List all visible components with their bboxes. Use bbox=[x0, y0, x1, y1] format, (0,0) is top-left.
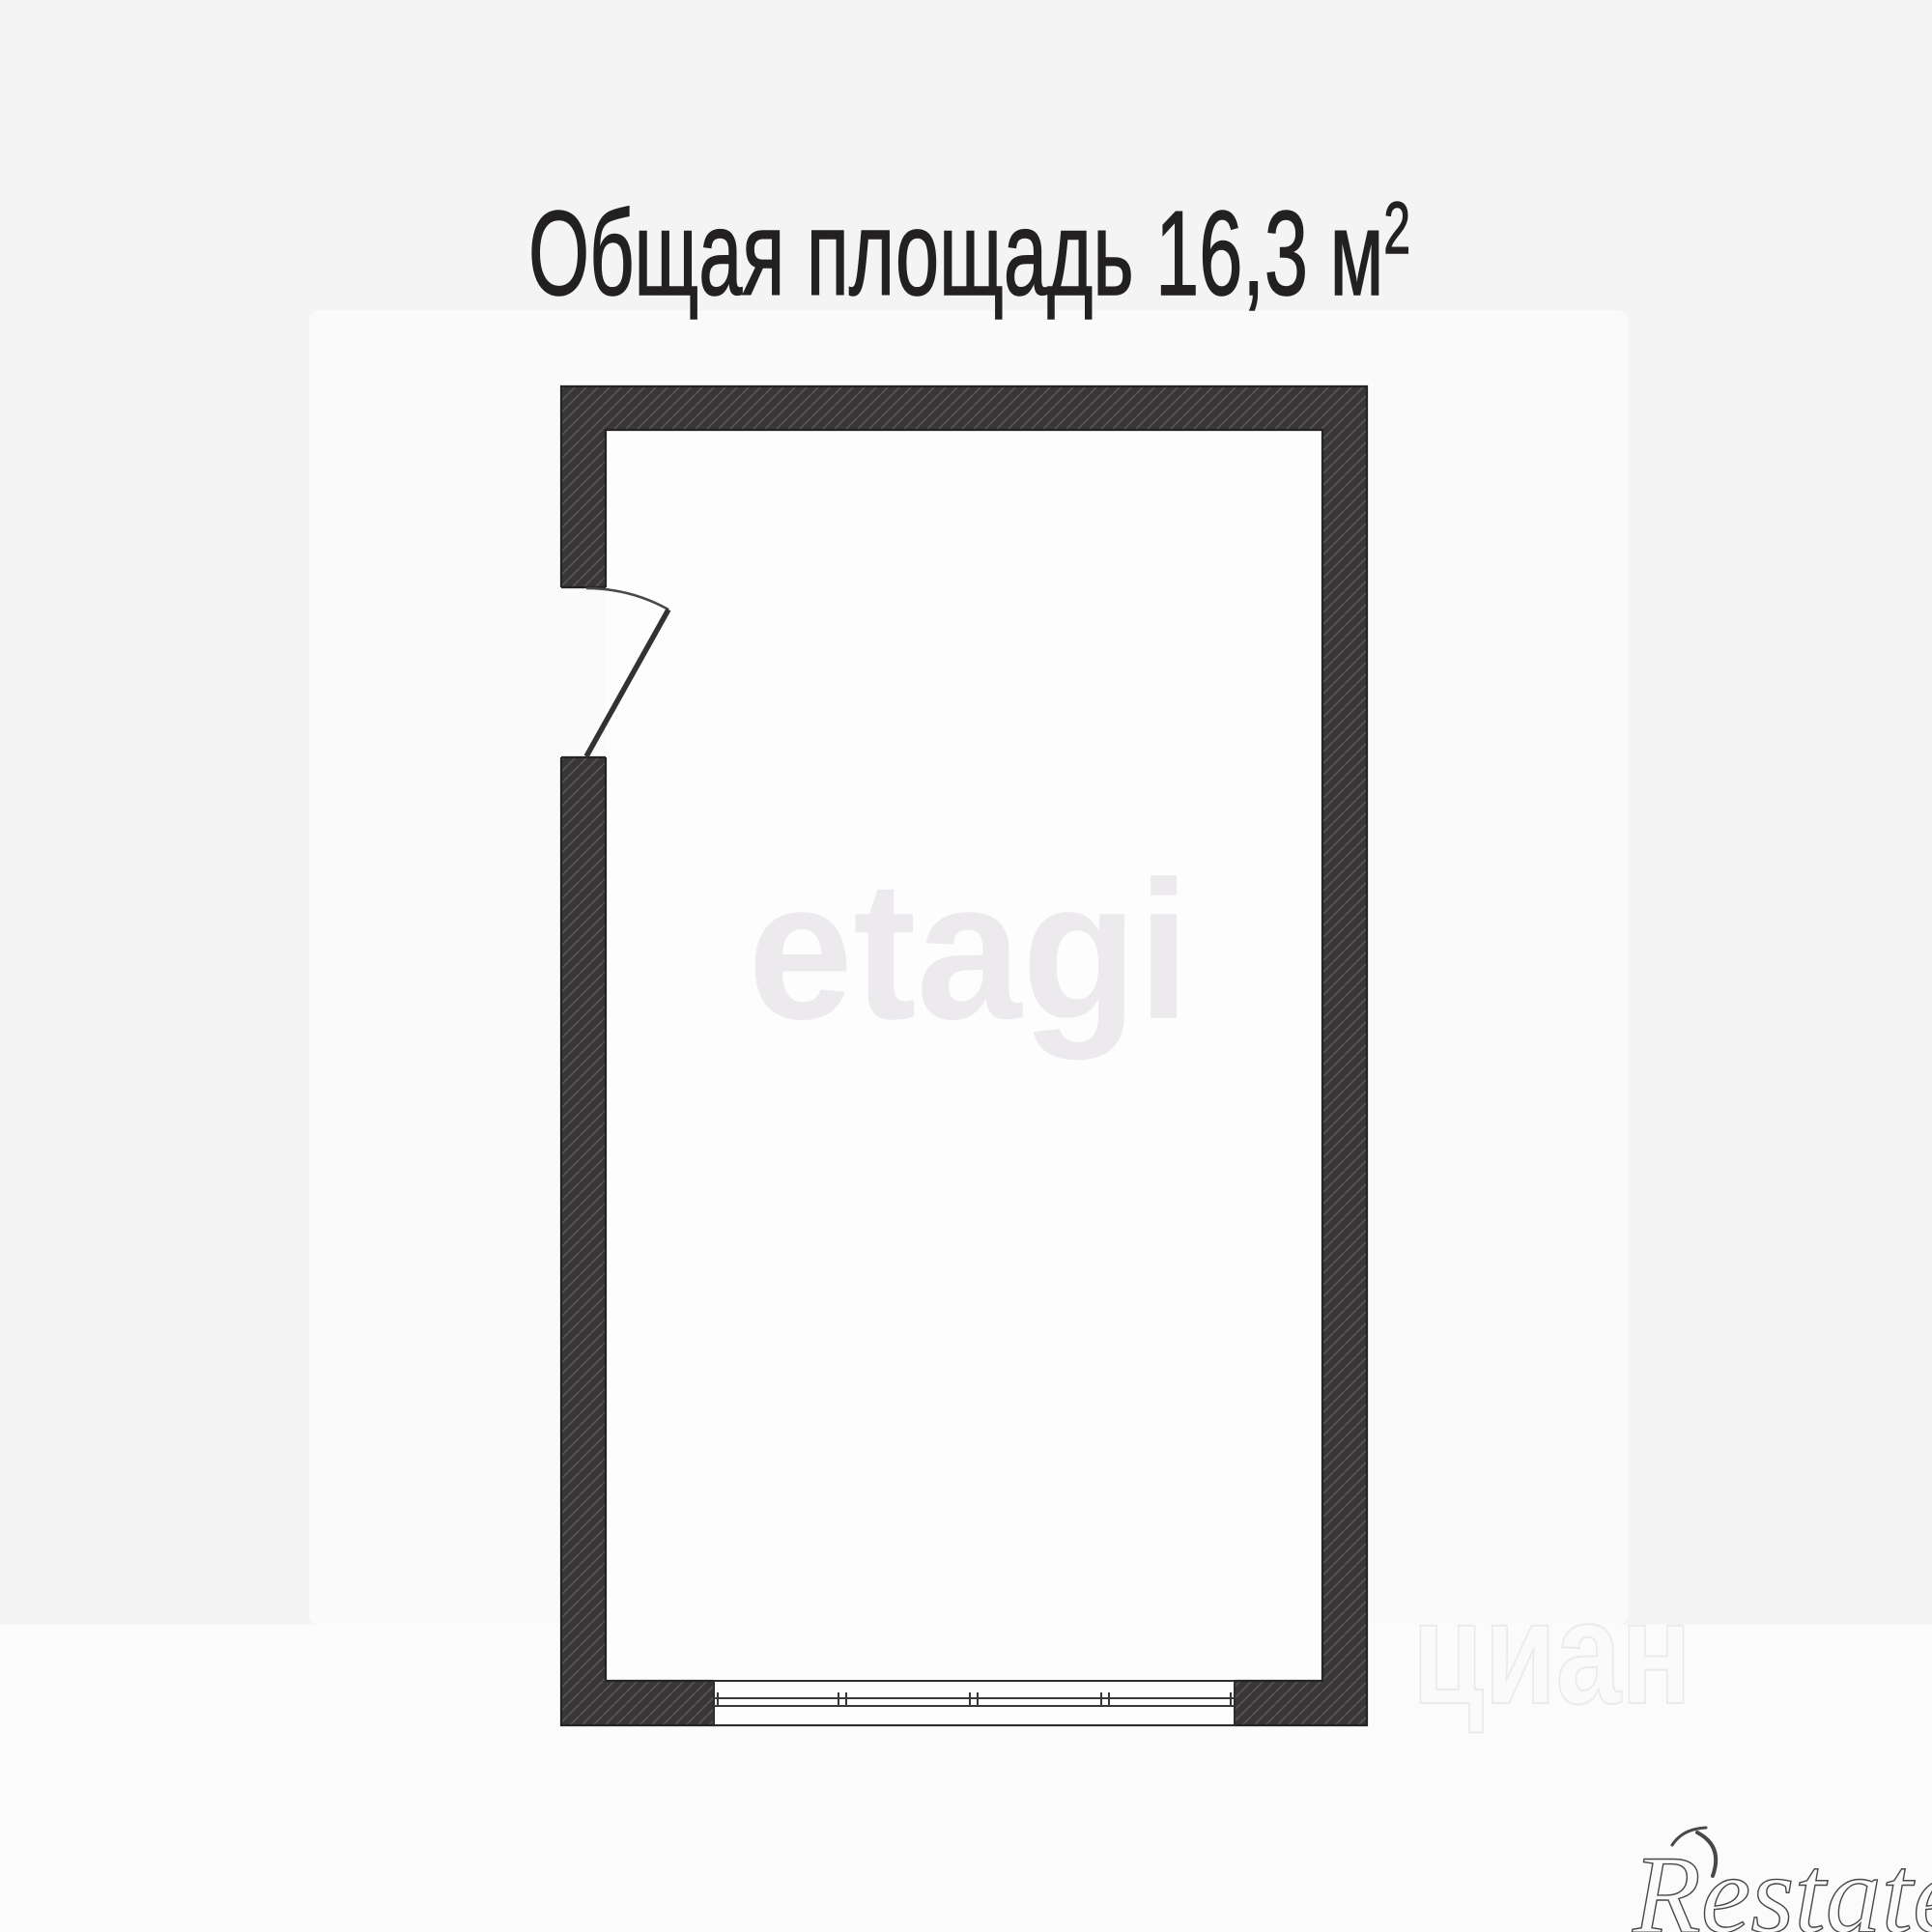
svg-text:Restate: Restate bbox=[1632, 1833, 1932, 1932]
svg-text:Общая площадь 16,3 м2: Общая площадь 16,3 м2 bbox=[528, 187, 1410, 321]
svg-text:etagi: etagi bbox=[748, 840, 1190, 1061]
svg-text:циан: циан bbox=[1412, 1571, 1691, 1735]
